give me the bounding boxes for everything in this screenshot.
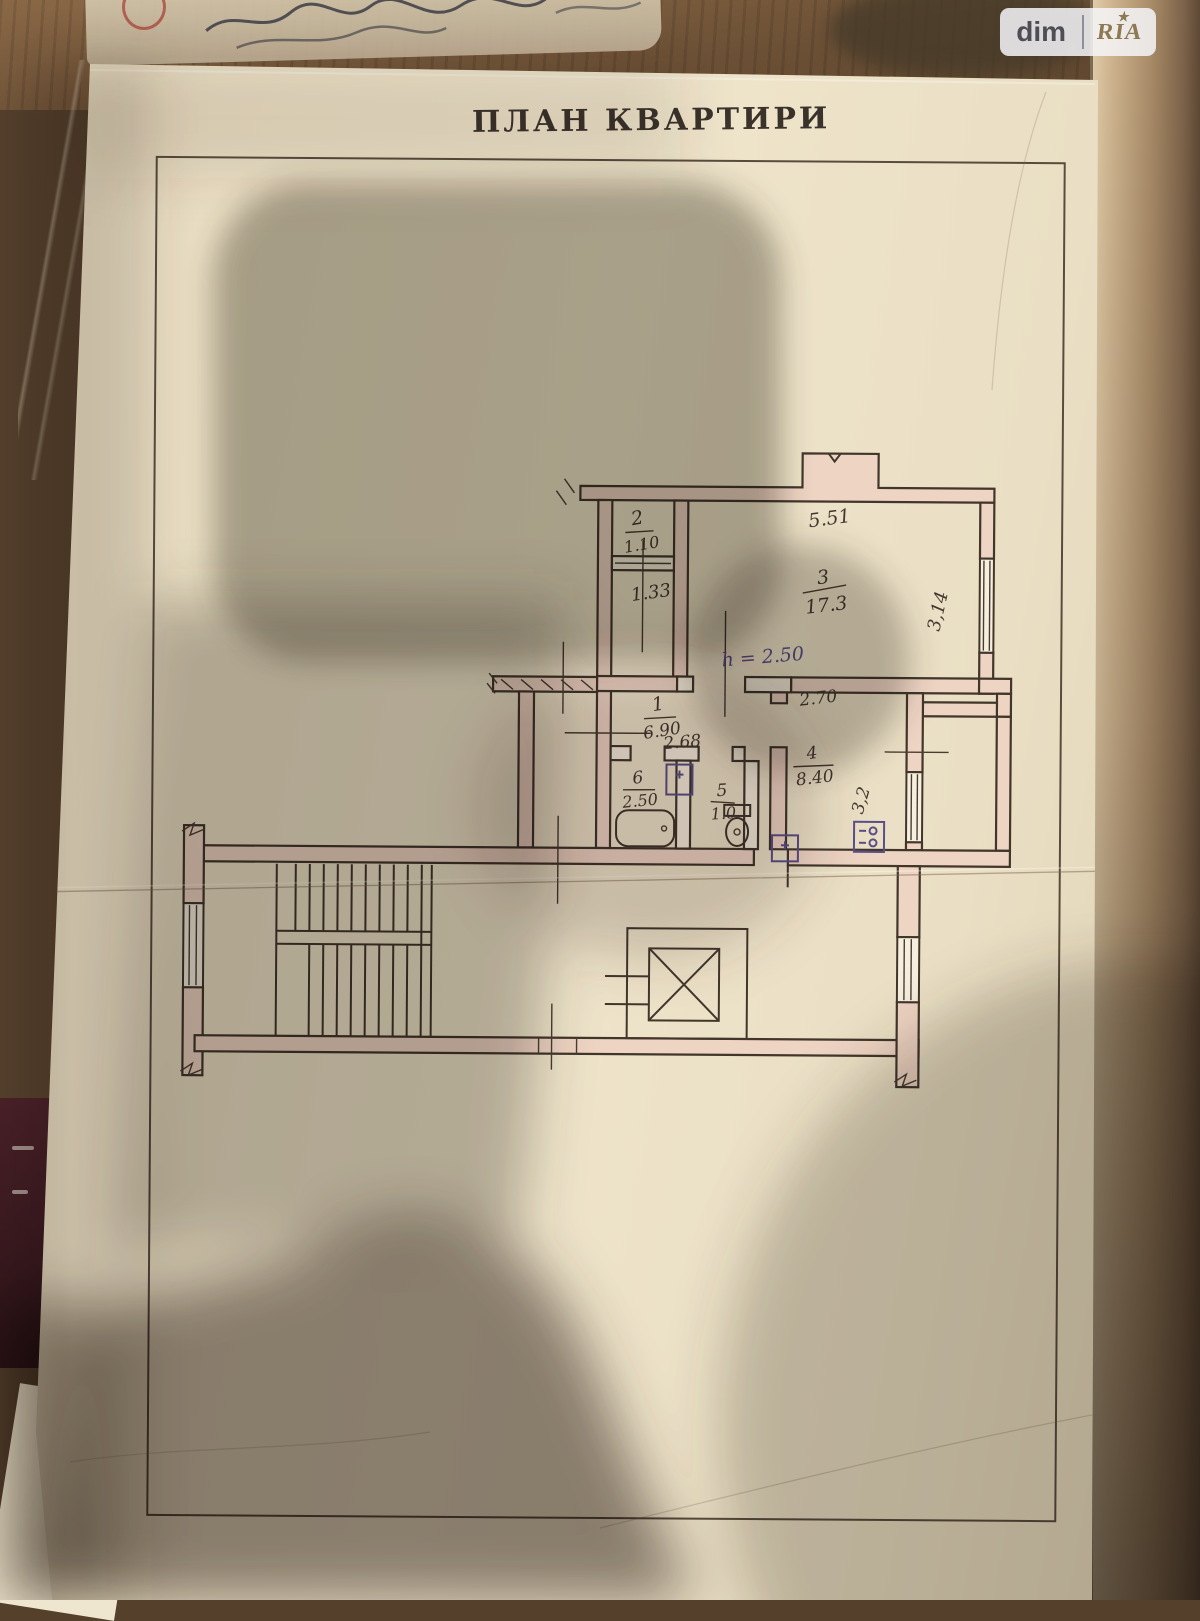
floor-plan-paper: ПЛАН КВАРТИРИ xyxy=(0,0,1200,1600)
page-curl-right xyxy=(1090,0,1200,1600)
paper-creases xyxy=(0,0,1200,1600)
dimria-watermark: dim ★ RIA xyxy=(1000,8,1156,56)
dim-logo-text: dim xyxy=(1000,18,1082,46)
ria-logo-text: ★ RIA xyxy=(1083,19,1158,45)
